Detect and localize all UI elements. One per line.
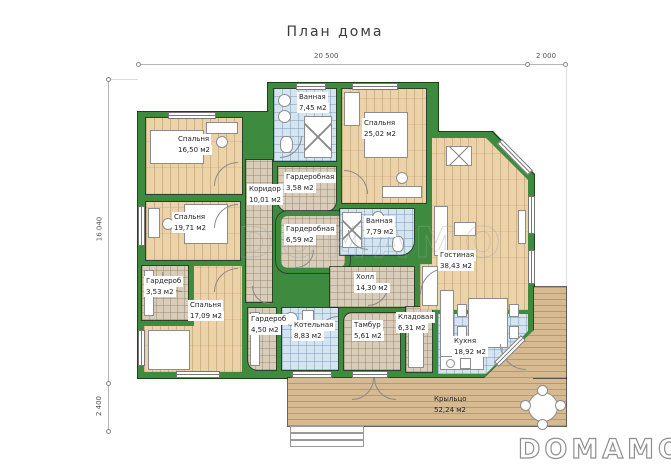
entrance-steps <box>290 426 364 433</box>
deck-chair <box>520 400 531 411</box>
room-label-pantry: Кладовая6,31 м2 <box>396 312 435 333</box>
deck-table <box>528 392 558 422</box>
room-label-bedroom-1971: Спальня19,71 м2 <box>172 212 208 233</box>
chair <box>509 304 519 317</box>
sink <box>278 94 291 107</box>
fireplace <box>446 146 472 166</box>
room-label-wardrobe-659: Гардеробная6,59 м2 <box>284 224 336 245</box>
desk <box>148 208 160 238</box>
room-label-bathroom-779: Ванная7,79 м2 <box>364 216 396 237</box>
window <box>352 83 398 90</box>
shower <box>304 116 332 158</box>
window <box>296 83 326 90</box>
kitchen-sink <box>446 359 455 368</box>
room-label-wardrobe-358: Гардеробная3,58 м2 <box>284 172 336 193</box>
room-label-vestibule: Тамбур5,61 м2 <box>352 320 384 341</box>
room-label-hall: Холл14,30 м2 <box>354 272 390 293</box>
tv-unit <box>518 210 526 244</box>
room-label-corridor: Коридор10,01 м2 <box>247 184 283 205</box>
room-label-wardrobe-353: Гардероб3,53 м2 <box>144 276 183 297</box>
window <box>138 330 145 366</box>
sink <box>278 110 291 123</box>
room-label-porch: Крыльцо52,24 м2 <box>432 394 469 415</box>
room-label-bedroom-1709: Спальня17,09 м2 <box>188 300 224 321</box>
deck-chair <box>555 400 566 411</box>
bed <box>148 330 190 370</box>
room-label-living: Гостиная38,43 м2 <box>438 250 476 271</box>
window <box>168 112 216 119</box>
window <box>528 250 535 284</box>
window <box>176 371 220 378</box>
chair <box>216 136 228 148</box>
porch-deck-right <box>534 287 566 378</box>
window <box>138 206 145 246</box>
floor-plan-canvas: План дома 20 500 2 000 16 040 2 400 <box>0 0 671 470</box>
desk <box>206 122 238 134</box>
entrance-steps <box>290 433 364 440</box>
room-label-bathroom-745: Ванная7,45 м2 <box>297 92 329 113</box>
stove <box>460 358 471 369</box>
deck-chair <box>537 385 548 396</box>
window <box>292 371 332 378</box>
room-label-wardrobe-450: Гардероб4,50 м2 <box>249 314 288 335</box>
room-label-kitchen: Кухня18,92 м2 <box>452 336 488 357</box>
chair <box>457 304 467 317</box>
room-label-bedroom-2502: Спальня25,02 м2 <box>362 118 398 139</box>
chair <box>396 172 408 184</box>
door-entrance-gap <box>352 371 388 378</box>
room-label-bedroom-1650: Спальня16,50 м2 <box>176 134 212 155</box>
entrance-steps <box>290 440 364 447</box>
wardrobe-cabinet <box>344 92 360 126</box>
deck-chair <box>537 419 548 430</box>
desk <box>382 186 422 198</box>
room-label-boiler: Котельная8,83 м2 <box>292 320 335 341</box>
window <box>528 196 535 234</box>
